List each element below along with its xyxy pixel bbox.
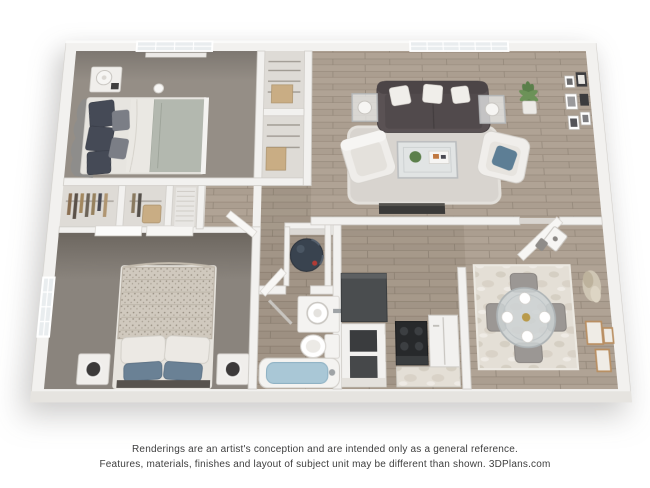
black-range bbox=[395, 322, 428, 365]
refrigerator bbox=[428, 315, 459, 367]
bedroom-2-bed bbox=[112, 263, 217, 389]
toilet bbox=[300, 334, 339, 358]
coffee-table bbox=[397, 142, 457, 178]
bathroom-vanity bbox=[298, 296, 342, 332]
bedroom-1-nightstand bbox=[89, 67, 122, 92]
bathtub bbox=[259, 358, 340, 388]
disclaimer: Renderings are an artist's conception an… bbox=[0, 442, 650, 472]
bedroom-1-bed bbox=[68, 97, 209, 177]
louvered-vent-door bbox=[174, 188, 196, 227]
living-room-window bbox=[410, 41, 508, 51]
floor-plan-figure: Renderings are an artist's conception an… bbox=[0, 0, 650, 488]
storage-bag bbox=[142, 205, 161, 223]
wall-shelf bbox=[146, 53, 207, 57]
bedroom-1-window bbox=[137, 41, 213, 51]
book bbox=[111, 83, 119, 89]
floor-plan-3d-view bbox=[30, 41, 632, 403]
disclaimer-line-2: Features, materials, finishes and layout… bbox=[0, 457, 650, 472]
water-heater bbox=[290, 239, 323, 272]
marble-counter bbox=[396, 367, 460, 387]
ceiling-light bbox=[154, 84, 164, 93]
floor-plan-svg bbox=[30, 41, 632, 403]
sofa bbox=[377, 81, 491, 132]
dark-counter bbox=[341, 273, 387, 321]
white-range bbox=[341, 324, 386, 387]
disclaimer-line-1: Renderings are an artist's conception an… bbox=[0, 442, 650, 457]
